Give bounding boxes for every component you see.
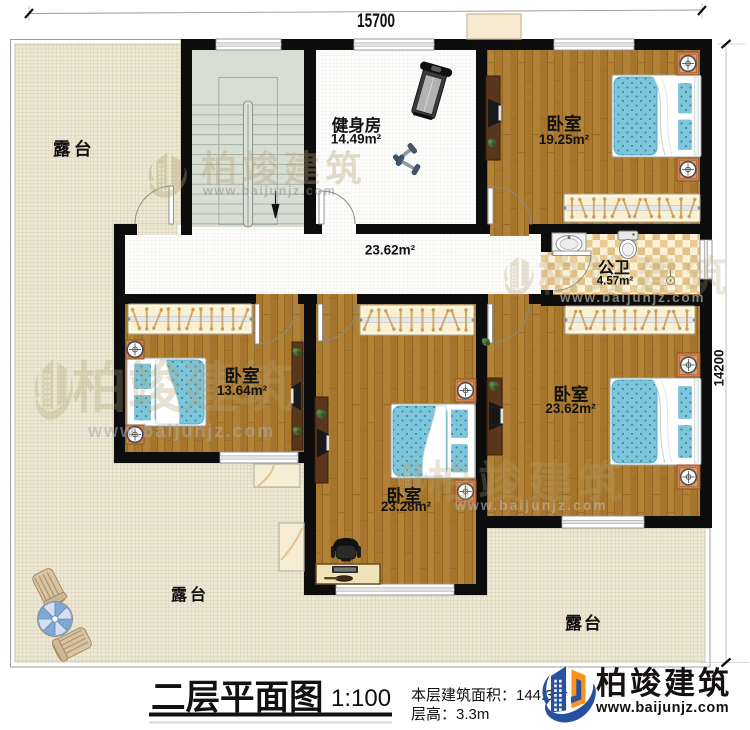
svg-text:柏竣建筑: 柏竣建筑 bbox=[201, 148, 367, 189]
svg-text:13.64m²: 13.64m² bbox=[217, 383, 268, 398]
svg-text:23.62m²: 23.62m² bbox=[545, 401, 596, 416]
svg-text:层高：3.3m: 层高：3.3m bbox=[411, 706, 489, 723]
svg-text:二层平面图: 二层平面图 bbox=[151, 679, 324, 717]
svg-text:19.25m²: 19.25m² bbox=[539, 132, 590, 147]
svg-text:www.baijunjz.com: www.baijunjz.com bbox=[87, 421, 275, 441]
svg-text:14.49m²: 14.49m² bbox=[331, 132, 382, 147]
svg-text:15700: 15700 bbox=[357, 11, 395, 32]
svg-text:www.baijunjz.com: www.baijunjz.com bbox=[202, 184, 336, 198]
svg-text:1:100: 1:100 bbox=[331, 685, 391, 712]
svg-text:www.baijunjz.com: www.baijunjz.com bbox=[559, 290, 705, 305]
svg-text:14200: 14200 bbox=[711, 349, 727, 386]
svg-text:露台: 露台 bbox=[53, 139, 95, 159]
svg-text:卧室: 卧室 bbox=[547, 114, 582, 134]
svg-text:公卫: 公卫 bbox=[598, 259, 630, 277]
svg-text:23.62m²: 23.62m² bbox=[365, 243, 416, 258]
svg-text:www.baijunjz.com: www.baijunjz.com bbox=[454, 497, 608, 513]
svg-text:www.baijunjz.com: www.baijunjz.com bbox=[595, 700, 729, 716]
svg-text:露台: 露台 bbox=[171, 585, 209, 604]
svg-text:4.57m²: 4.57m² bbox=[597, 276, 634, 288]
svg-text:露台: 露台 bbox=[565, 613, 603, 633]
svg-text:23.28m²: 23.28m² bbox=[381, 499, 432, 514]
svg-text:柏竣建筑: 柏竣建筑 bbox=[596, 666, 732, 701]
